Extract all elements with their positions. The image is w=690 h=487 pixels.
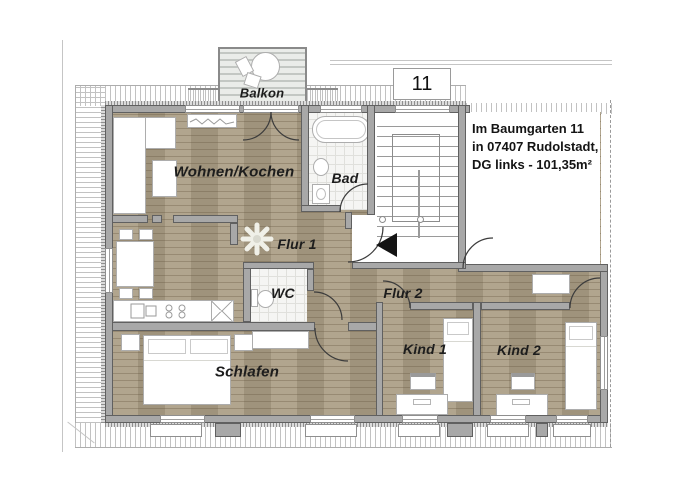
wall-flur1-post bbox=[152, 215, 162, 223]
window bbox=[310, 415, 355, 423]
dining-chair bbox=[139, 288, 153, 299]
desk-item bbox=[413, 399, 431, 405]
nightstand bbox=[121, 334, 140, 351]
eave-line-left bbox=[62, 40, 63, 452]
pillow bbox=[569, 326, 593, 340]
window bbox=[160, 415, 205, 423]
dresser bbox=[410, 373, 436, 390]
pillow bbox=[190, 339, 228, 354]
wall-bad-bottom bbox=[301, 205, 341, 212]
radiator-icon bbox=[187, 114, 237, 128]
washing-machine-icon bbox=[312, 184, 330, 204]
address-line: DG links - 101,35m² bbox=[472, 156, 598, 174]
wardrobe bbox=[252, 331, 309, 349]
room-label-flur2: Flur 2 bbox=[383, 285, 422, 301]
window bbox=[402, 415, 438, 423]
sofa bbox=[113, 117, 146, 214]
stairs-railing bbox=[392, 134, 440, 222]
wall-schlafen-top bbox=[112, 322, 315, 331]
bathtub-inner bbox=[316, 120, 366, 139]
bed-line bbox=[144, 360, 230, 361]
dormer-pier bbox=[215, 423, 241, 437]
nightstand bbox=[234, 334, 253, 351]
wall-flur2-bottom bbox=[410, 302, 473, 310]
window bbox=[320, 105, 362, 113]
wall-flur1-partial bbox=[112, 215, 148, 223]
kitchen-cabinet bbox=[211, 300, 234, 322]
dining-chair bbox=[119, 288, 133, 299]
window bbox=[105, 248, 113, 293]
wall-bad-left bbox=[301, 105, 309, 212]
plant-icon bbox=[240, 222, 274, 261]
house-number: 11 bbox=[412, 73, 433, 96]
dining-table bbox=[116, 241, 154, 287]
window bbox=[185, 105, 240, 113]
wall-kind2-top bbox=[481, 302, 570, 310]
dormer-pier bbox=[447, 423, 473, 437]
window bbox=[600, 336, 608, 390]
roof-dashed-right bbox=[610, 100, 611, 447]
wall-wc-left bbox=[243, 262, 251, 322]
address-block: Im Baumgarten 11 in 07407 Rudolstadt, DG… bbox=[472, 120, 598, 174]
floor-plan: Balkon 11 Im Baumgarten 11 in 07407 Rudo… bbox=[0, 0, 690, 487]
dresser bbox=[511, 373, 535, 390]
dormer-pier bbox=[536, 423, 548, 437]
room-label-schlafen: Schlafen bbox=[215, 364, 279, 381]
pillow bbox=[148, 339, 186, 354]
bed-line bbox=[444, 341, 472, 342]
room-label-kind2: Kind 2 bbox=[497, 342, 541, 358]
wall-stairs-bottom bbox=[352, 262, 466, 269]
single-bed bbox=[565, 322, 597, 410]
single-bed bbox=[443, 318, 473, 402]
wall-kind-divider bbox=[473, 302, 481, 416]
wall-stairwell-right bbox=[458, 105, 466, 270]
sideboard bbox=[532, 274, 570, 294]
room-label-bad: Bad bbox=[331, 170, 358, 186]
room-label-wc: WC bbox=[271, 285, 295, 301]
wall-wc-right bbox=[307, 269, 314, 291]
stairs-post bbox=[417, 216, 424, 223]
window bbox=[556, 415, 588, 423]
washbasin-icon bbox=[313, 158, 329, 176]
desk bbox=[396, 394, 448, 415]
stairwell-entrance bbox=[395, 105, 450, 113]
eave-line-top-right bbox=[330, 60, 612, 61]
dormer-window bbox=[398, 424, 440, 437]
dormer-window bbox=[553, 424, 591, 437]
wall-flur1-partial bbox=[173, 215, 238, 223]
wall-entrance bbox=[345, 212, 352, 229]
stove-icon bbox=[163, 303, 189, 324]
address-line: in 07407 Rudolstadt, bbox=[472, 138, 598, 156]
dormer-window bbox=[305, 424, 357, 437]
room-label-balkon: Balkon bbox=[240, 86, 285, 101]
pillow bbox=[447, 322, 469, 335]
room-label-flur1: Flur 1 bbox=[277, 236, 316, 252]
dining-chair bbox=[139, 229, 153, 240]
wall-bad-stairs bbox=[367, 105, 375, 215]
dormer-window bbox=[487, 424, 529, 437]
eave-line-top-right2 bbox=[330, 64, 612, 65]
bathtub-icon bbox=[312, 116, 370, 143]
room-label-kind1: Kind 1 bbox=[403, 341, 447, 357]
wall-wc-top bbox=[243, 262, 314, 269]
wall-rightwing-top bbox=[458, 264, 608, 272]
dormer-window bbox=[150, 424, 202, 437]
desk bbox=[496, 394, 548, 416]
desk-item bbox=[512, 399, 530, 405]
stairs-post bbox=[379, 216, 386, 223]
dining-chair bbox=[119, 229, 133, 240]
entrance-arrow-icon bbox=[376, 233, 397, 257]
sink-icon bbox=[130, 303, 158, 324]
room-label-wohnen-kochen: Wohnen/Kochen bbox=[174, 164, 295, 181]
address-line: Im Baumgarten 11 bbox=[472, 120, 598, 138]
window bbox=[490, 415, 526, 423]
wall-kind1-left bbox=[376, 302, 383, 416]
wall-flur1-stub bbox=[230, 223, 238, 245]
house-number-badge: 11 bbox=[393, 68, 451, 100]
bed-line bbox=[566, 346, 596, 347]
balcony-door-opening bbox=[243, 105, 299, 113]
